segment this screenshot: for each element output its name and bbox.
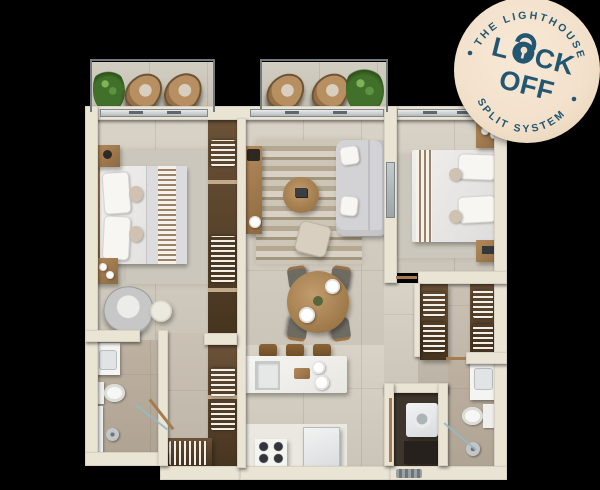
wall-right <box>494 106 507 470</box>
hallway-floor <box>384 283 418 392</box>
stove <box>255 439 287 466</box>
balcony-living-railing <box>260 59 388 112</box>
wall-left <box>85 106 98 466</box>
coffee-cups <box>99 263 107 271</box>
balcony-left-railing <box>90 59 215 112</box>
wall-bath2-top <box>466 352 507 364</box>
window-bedroom-1 <box>100 109 208 117</box>
phone-dock <box>482 246 494 254</box>
washer-drum <box>413 410 431 428</box>
hanging-clothes <box>169 441 207 465</box>
sofa-pillow <box>339 195 359 217</box>
hanging-clothes <box>423 292 445 316</box>
wall-bath1-right <box>158 330 168 466</box>
bathroom-2-sink <box>470 362 496 400</box>
decor-disc <box>249 216 261 228</box>
fridge <box>303 427 340 469</box>
plate <box>325 279 340 294</box>
coffee-table-books <box>295 188 307 197</box>
wall-bottom-kitchen <box>240 466 394 480</box>
floorplan-scene: THE LIGHTHOUSE SPLIT SYSTEM L CK OFF <box>0 0 600 490</box>
plate <box>299 307 315 323</box>
hanging-clothes <box>211 236 235 282</box>
bed-1-runner <box>158 166 176 264</box>
wall-bedroom1-living <box>237 118 246 468</box>
bedroom2-sliding-door <box>386 162 395 218</box>
bowl <box>314 375 329 390</box>
wall-bedroom2-bottom <box>418 271 507 284</box>
island-sink <box>255 361 280 390</box>
table-lamp-icon <box>103 150 112 159</box>
laundry-counter <box>404 441 438 464</box>
bed-2-pillow <box>458 153 497 180</box>
wardrobe-shelf <box>208 288 238 292</box>
bed-2-pillow <box>457 195 496 224</box>
sofa-pillow <box>339 145 360 166</box>
toilet <box>104 384 125 402</box>
bed-2-runner <box>416 150 432 242</box>
hanging-clothes <box>211 368 235 396</box>
table-centerpiece <box>313 296 323 306</box>
wall-bottom-bath1 <box>85 452 168 466</box>
bed-1-pillow <box>102 215 131 260</box>
bed-1-accent-pillow <box>129 186 143 202</box>
door-threshold-bath2 <box>446 357 466 360</box>
bed-2-accent-pillow <box>449 168 462 181</box>
shower-head-icon <box>106 428 119 441</box>
sink-bowl <box>474 368 493 390</box>
lockoff-badge: THE LIGHTHOUSE SPLIT SYSTEM L CK OFF <box>452 0 600 147</box>
side-table-round <box>150 300 172 322</box>
wall-closet-left-top <box>204 333 237 345</box>
wall-closet-right-stub <box>414 283 420 357</box>
badge-dot-left <box>468 51 473 56</box>
wardrobe-shelf <box>208 180 238 184</box>
entry-mat <box>396 469 422 478</box>
hanging-clothes <box>211 140 235 166</box>
door-leaf-laundry <box>389 398 392 462</box>
wall-bath1-top <box>85 330 140 342</box>
tv-icon <box>247 149 260 161</box>
hanging-clothes <box>211 400 235 430</box>
badge-dot-right <box>572 97 577 102</box>
bed-2-accent-pillow <box>449 210 462 223</box>
sink-bowl <box>99 350 117 370</box>
bed-1-pillow <box>102 171 132 215</box>
hanging-clothes <box>473 290 493 318</box>
window-living <box>250 109 384 117</box>
plate <box>312 361 325 374</box>
toilet <box>462 407 483 425</box>
hanging-clothes <box>423 322 445 352</box>
bed-1-accent-pillow <box>129 226 143 242</box>
coffee-cups <box>106 271 114 279</box>
hanging-clothes <box>473 324 493 354</box>
cutting-board <box>294 368 310 379</box>
door-threshold-bedroom2 <box>396 276 417 279</box>
wall-bottom-closet <box>160 466 248 480</box>
